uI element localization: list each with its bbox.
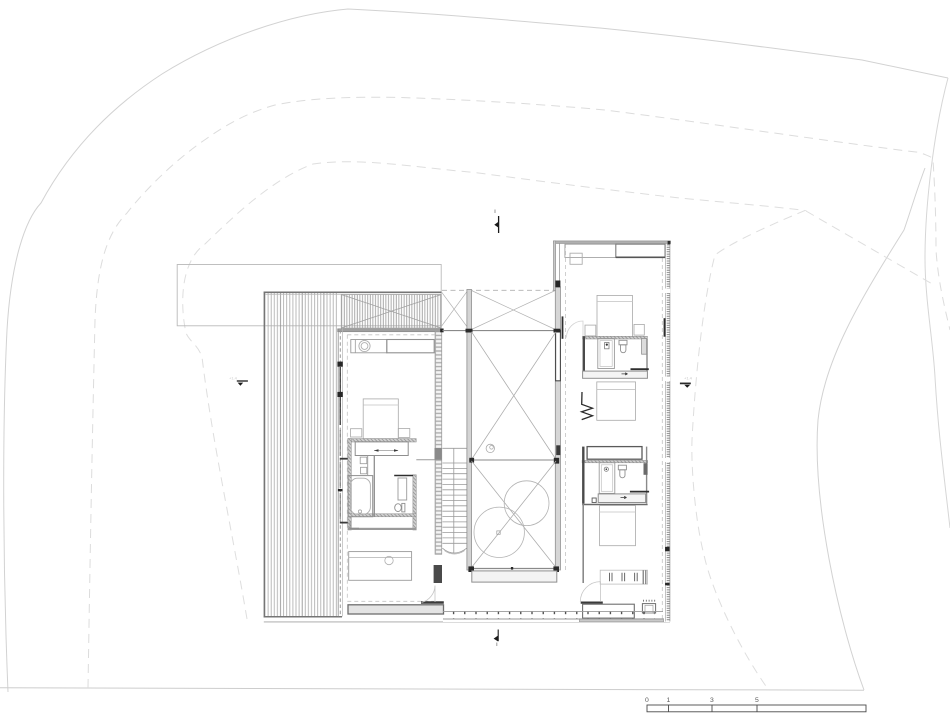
svg-text:+1.4: +1.4 — [684, 376, 693, 381]
svg-text:1: 1 — [667, 697, 671, 704]
svg-text:5: 5 — [755, 697, 759, 704]
svg-text:0: 0 — [645, 697, 649, 704]
svg-text:+1.4: +1.4 — [229, 376, 238, 381]
svg-text:3: 3 — [710, 697, 714, 704]
